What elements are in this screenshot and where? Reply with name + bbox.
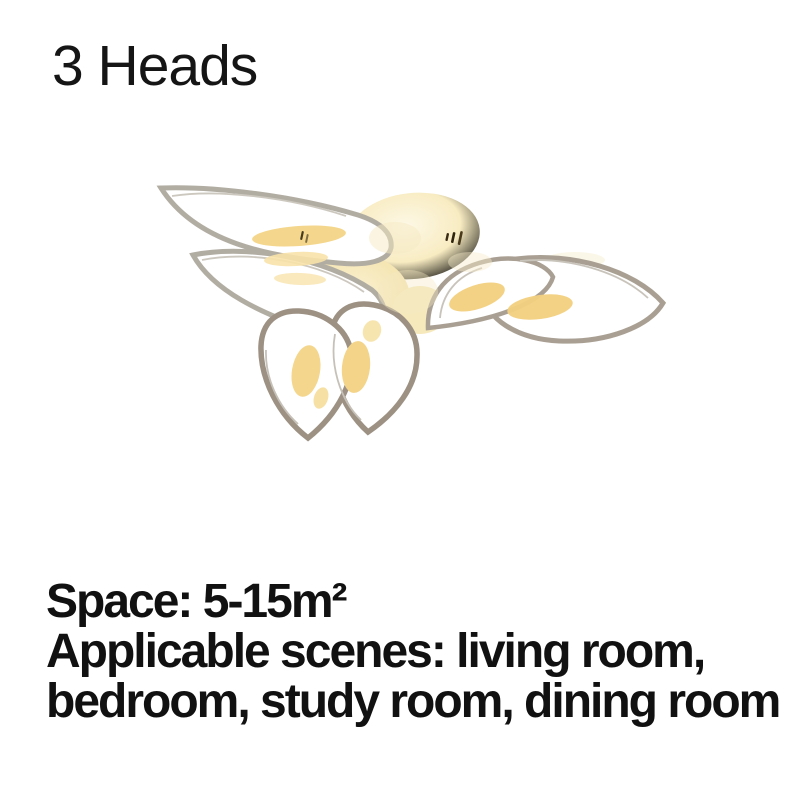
spec-scenes-line1: Applicable scenes: living room,: [46, 627, 779, 677]
spec-scenes-line2: bedroom, study room, dining room: [46, 677, 779, 727]
product-card: 3 Heads: [0, 0, 800, 800]
product-specs: Space: 5-15m² Applicable scenes: living …: [46, 577, 779, 727]
spec-space: Space: 5-15m²: [46, 577, 779, 627]
lamp-head-bottom: [261, 304, 417, 438]
